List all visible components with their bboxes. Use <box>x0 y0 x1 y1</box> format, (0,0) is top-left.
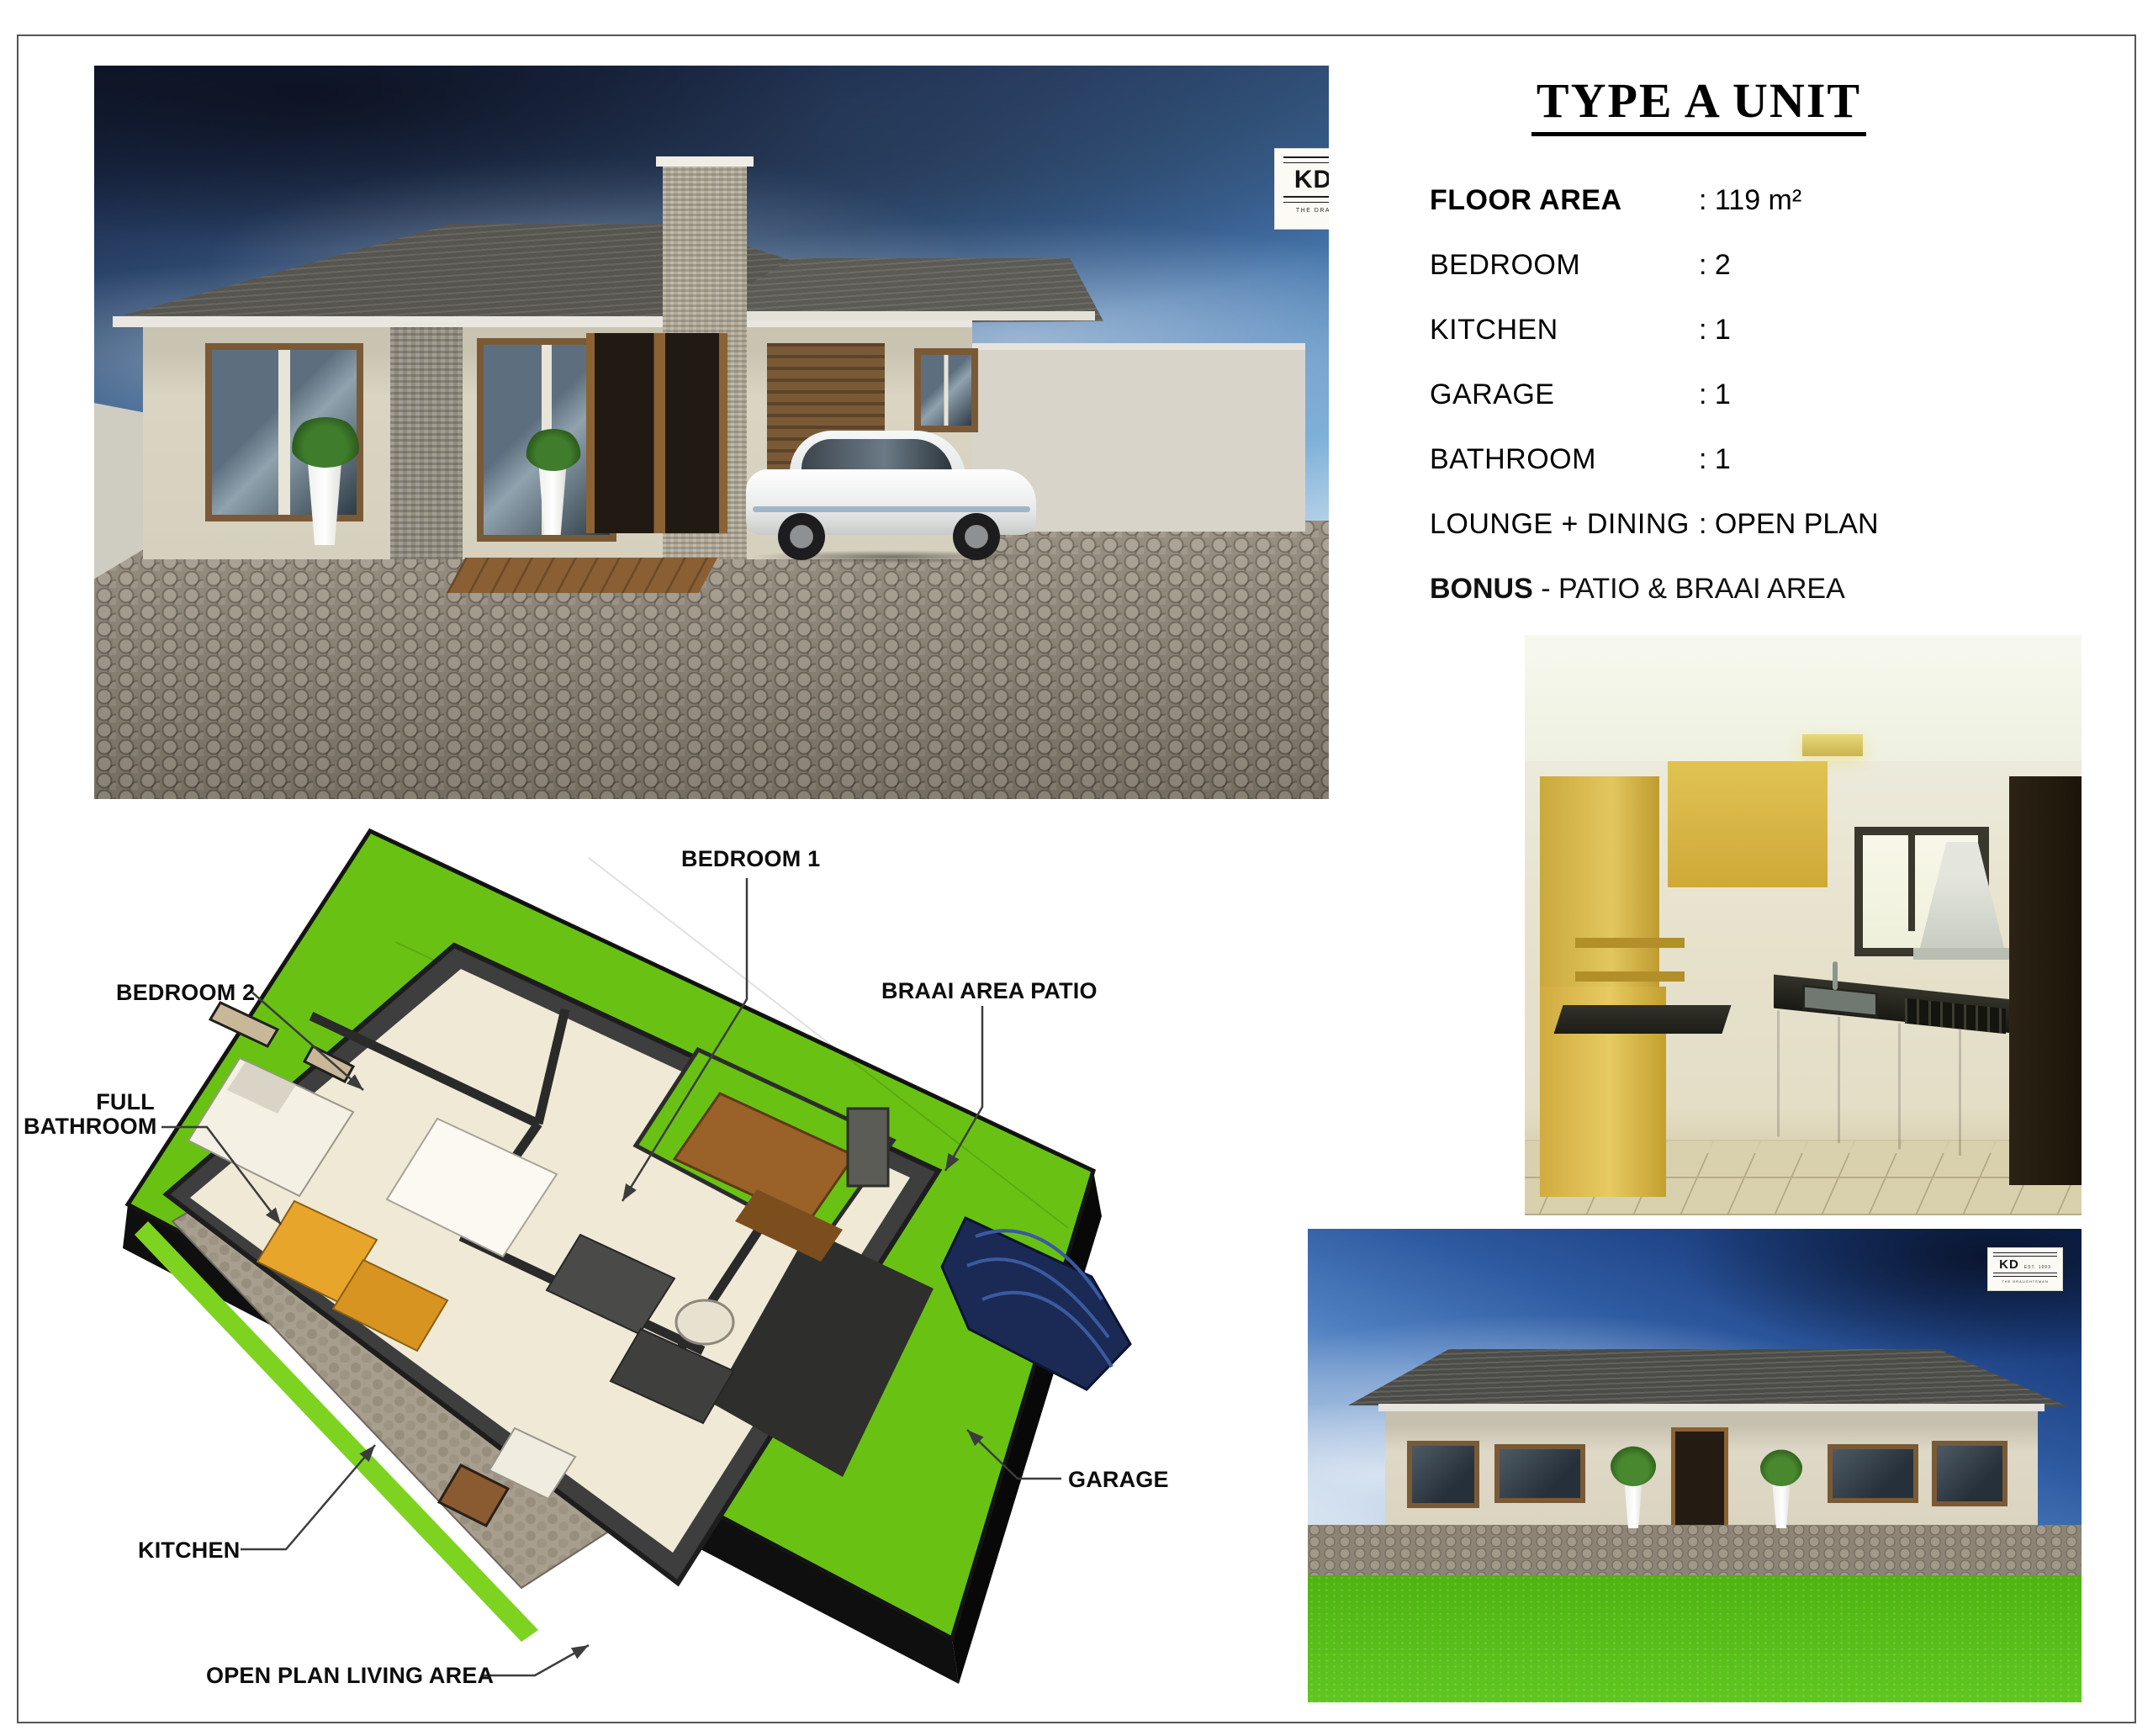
spec-label: BEDROOM <box>1430 249 1699 282</box>
spec-label: KITCHEN <box>1430 314 1699 347</box>
spec-row-bathroom: BATHROOM : 1 <box>1430 427 2119 492</box>
spec-value: : 1 <box>1699 378 1731 411</box>
fascia <box>733 311 1095 320</box>
spec-value: : 1 <box>1699 314 1731 347</box>
logo-initials: KD <box>1999 1258 2019 1271</box>
spec-label: BATHROOM <box>1430 443 1699 476</box>
plan-label-kitchen: KITCHEN <box>138 1538 240 1564</box>
shrub <box>1611 1446 1656 1486</box>
plan-label-garage: GARAGE <box>1068 1467 1169 1493</box>
plan-label-braai-area-patio: BRAAI AREA PATIO <box>881 978 1098 1004</box>
car-wheel <box>778 513 825 560</box>
fascia <box>1378 1404 2045 1411</box>
ceiling-light <box>1802 734 1863 756</box>
logo-tagline: THE DRAUGHTSMAN <box>1283 208 1329 214</box>
spec-row-bedroom: BEDROOM : 2 <box>1430 233 2119 298</box>
spec-value: : OPEN PLAN <box>1699 508 1879 541</box>
white-car <box>746 426 1036 560</box>
plan-label-line: BATHROOM <box>24 1114 155 1139</box>
spec-label: GARAGE <box>1430 378 1699 411</box>
cobblestone-paving <box>1308 1525 2082 1580</box>
spec-row-garage: GARAGE : 1 <box>1430 363 2119 427</box>
plan-label-bedroom2: BEDROOM 2 <box>116 980 255 1006</box>
car-trim <box>753 506 1030 512</box>
logo-rule <box>1993 1273 2057 1277</box>
bonus-text: - PATIO & BRAAI AREA <box>1533 573 1845 606</box>
spec-value: : 119 m² <box>1699 184 1801 217</box>
open-shelves <box>1575 938 1685 948</box>
logo-tagline: THE DRAUGHTSMAN <box>1993 1279 2057 1283</box>
tall-cabinet <box>1540 776 1659 987</box>
plan-label-full-bathroom: FULL BATHROOM <box>24 1090 155 1138</box>
wood-deck <box>447 558 717 593</box>
plan-label-open-plan-living-area: OPEN PLAN LIVING AREA <box>206 1663 494 1689</box>
island-countertop <box>1553 1005 1731 1034</box>
plant <box>525 429 582 471</box>
exterior-render-front: KD EST. 1993 THE DRAUGHTSMAN <box>94 66 1329 799</box>
window <box>1828 1444 1918 1503</box>
chimney-cap <box>656 156 754 167</box>
exterior-render-rear: KD EST. 1993 THE DRAUGHTSMAN <box>1308 1229 2082 1702</box>
spec-list: FLOOR AREA : 119 m² BEDROOM : 2 KITCHEN … <box>1430 168 2119 622</box>
front-door <box>1671 1427 1728 1535</box>
extractor-hood-base <box>1913 948 2013 960</box>
spec-value: : 1 <box>1699 443 1731 476</box>
dark-door <box>2009 776 2082 1185</box>
spec-row-kitchen: KITCHEN : 1 <box>1430 298 2119 363</box>
plan-label-bedroom1: BEDROOM 1 <box>681 846 816 872</box>
spec-value: : 2 <box>1699 249 1731 282</box>
shrub <box>1760 1449 1802 1486</box>
faucet <box>1833 961 1838 990</box>
kitchen-render <box>1525 635 2082 1215</box>
base-cabinets <box>1777 1010 2029 1163</box>
spec-label: FLOOR AREA <box>1430 184 1699 217</box>
kd-logo: KD EST. 1993 THE DRAUGHTSMAN <box>1274 148 1329 230</box>
window <box>1407 1441 1479 1508</box>
logo-rule <box>1283 156 1329 163</box>
stone-cladding <box>390 327 463 559</box>
logo-rule <box>1993 1252 2057 1257</box>
window <box>1494 1444 1585 1503</box>
bonus-label: BONUS <box>1430 573 1533 606</box>
spec-row-bonus: BONUS - PATIO & BRAAI AREA <box>1430 557 2119 622</box>
car-wheel <box>953 513 1000 560</box>
upper-cabinets <box>1668 761 1828 887</box>
plant <box>289 417 362 468</box>
logo-initials: KD <box>1294 167 1329 193</box>
spec-row-floor-area: FLOOR AREA : 119 m² <box>1430 168 2119 233</box>
plan-label-line: FULL <box>24 1090 155 1114</box>
page-title: TYPE A UNIT <box>1430 72 1968 136</box>
lawn <box>1308 1575 2082 1702</box>
logo-rule <box>1283 196 1329 203</box>
window <box>914 348 978 432</box>
window <box>1932 1441 2008 1506</box>
spec-row-lounge-dining: LOUNGE + DINING : OPEN PLAN <box>1430 492 2119 557</box>
patio-doorway <box>586 333 727 533</box>
logo-est-text: EST. 1993 <box>2024 1265 2051 1270</box>
spec-label: LOUNGE + DINING <box>1430 508 1699 541</box>
window-mullion <box>1908 835 1915 931</box>
kd-logo: KD EST. 1993 THE DRAUGHTSMAN <box>1987 1247 2063 1291</box>
